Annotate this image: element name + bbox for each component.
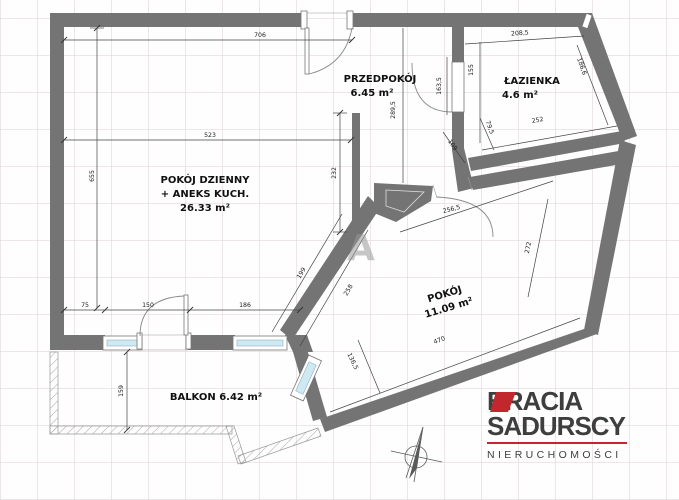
dimension-label: 199 [296, 266, 308, 280]
dimension-label: 163,5 [436, 77, 443, 95]
dimension-label: 523 [204, 132, 216, 139]
wall-bottom-a [50, 335, 105, 350]
room-label-hall: PRZEDPOKÓJ [344, 72, 417, 85]
dimension-label: 232 [331, 167, 338, 179]
balcony-wall-bottom [50, 426, 232, 434]
dimension-label: 75 [81, 302, 89, 309]
window-living-2-glass [237, 340, 283, 346]
logo-brand-bottom: SADURSCY [487, 414, 647, 439]
dimension-label: 256,5 [442, 204, 461, 215]
entrance-door-leaf [305, 28, 309, 74]
entrance-jamb-right [347, 11, 353, 29]
balcony-jamb-left [137, 333, 142, 349]
balcony-wall-left [50, 352, 58, 434]
bathroom-door-leaf [452, 62, 464, 112]
dimension-label: 706 [254, 32, 266, 39]
shaft-column [374, 183, 433, 222]
agency-logo: BRACIA SADURSCY NIERUCHOMOŚCI [487, 389, 647, 461]
dimension-lines [64, 28, 617, 430]
room-labels: POKÓJ DZIENNY + ANEKS KUCH. 26.33 m² PRZ… [161, 72, 561, 403]
dimension-label: 252 [531, 116, 544, 125]
entrance-door-arc [309, 28, 352, 74]
logo-mark-icon [490, 392, 516, 413]
balcony-walls [50, 352, 321, 464]
logo-divider [487, 442, 627, 444]
floorplan-canvas: 706 523 655 75 150 186 159 232 289,5 163… [0, 0, 679, 500]
wall-bottom-c [285, 335, 313, 352]
dimension-label: 136,5 [345, 352, 359, 371]
balcony-door-leaf [184, 295, 188, 335]
logo-tagline: NIERUCHOMOŚCI [487, 449, 647, 461]
window-living-1-glass [107, 340, 138, 346]
dimension-label: 289,5 [390, 101, 397, 119]
room-area-hall: 6.45 m² [351, 88, 394, 99]
dimension-label: 150 [142, 302, 154, 309]
wall-top-left [50, 13, 303, 27]
room-label-balcony: BALKON 6.42 m² [170, 392, 262, 403]
room-area-bath: 4.6 m² [502, 90, 538, 101]
dimension-label: 470 [433, 335, 447, 346]
dimension-label: 258 [343, 283, 355, 297]
wall-room-east [584, 140, 636, 335]
room-label-living-2: + ANEKS KUCH. [161, 189, 249, 200]
dimension-label: 208,5 [511, 29, 529, 37]
room-door-jamb-line-1 [433, 185, 437, 198]
north-arrow-icon [391, 427, 442, 482]
entrance-jamb-left [301, 11, 307, 29]
bathroom-door-arc [412, 63, 452, 112]
dimension-label: 186 [239, 302, 251, 309]
room-label-room-group: POKÓJ 11.09 m² [419, 280, 475, 320]
wall-bath-right [578, 13, 637, 141]
balcony-wall-diagonal [238, 428, 321, 464]
compass-needle-line-1 [414, 427, 423, 482]
wall-bath-left-lower [452, 112, 474, 192]
dimension-label: 155 [468, 64, 475, 76]
room-label-living: POKÓJ DZIENNY [161, 173, 251, 186]
dimension-label: 79,5 [484, 120, 495, 135]
dimension-label: 159 [118, 385, 125, 397]
dimension-label: 272 [524, 241, 533, 254]
watermark-letter: A [347, 228, 375, 269]
wall-bottom-b [188, 335, 235, 350]
dimension-label: 655 [89, 170, 96, 182]
room-area-living: 26.33 m² [180, 203, 230, 214]
wall-bath-left-upper [452, 27, 464, 62]
wall-top-right [352, 13, 592, 27]
windows [103, 13, 592, 401]
dimension-label: 186,6 [575, 57, 588, 76]
room-label-bath: ŁAZIENKA [503, 76, 560, 87]
wall-left [50, 13, 64, 350]
